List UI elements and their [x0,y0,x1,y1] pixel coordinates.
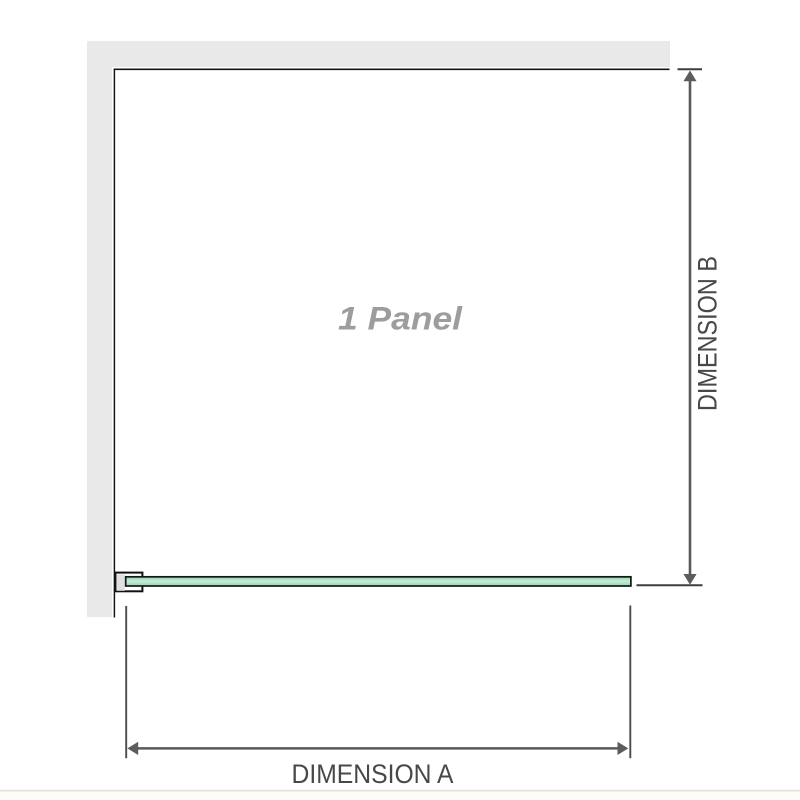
svg-text:DIMENSION B: DIMENSION B [693,256,723,411]
svg-text:DIMENSION A: DIMENSION A [292,759,454,789]
svg-text:1 Panel: 1 Panel [338,300,463,336]
